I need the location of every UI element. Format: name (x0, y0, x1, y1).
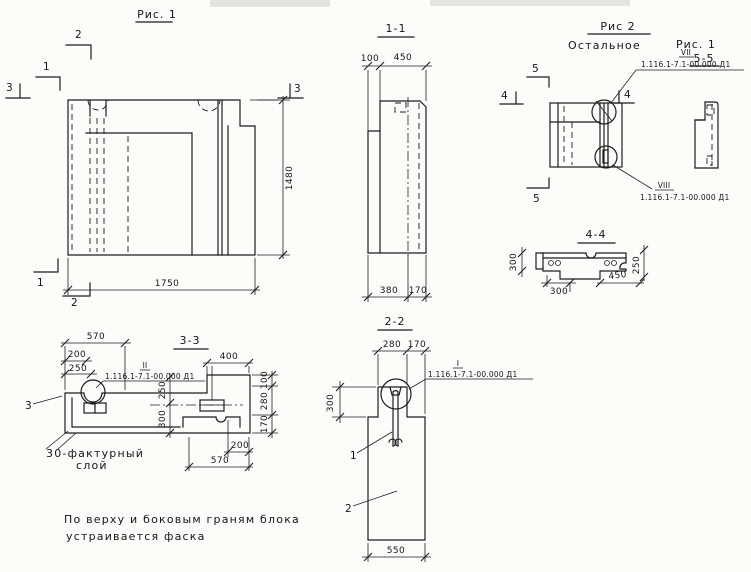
detail-viii-callout: VIII 1.116.1-7.1-00.000 Д1 (613, 165, 729, 202)
section-1-1: 1-1 100 450 380 170 (361, 22, 432, 302)
section-5-5-title: 5-5 (694, 52, 715, 65)
detail-circle-bottom (595, 146, 617, 168)
section-1-1-top-dims: 100 450 (361, 53, 432, 131)
dim-100: 100 (361, 54, 379, 64)
dim-33-right-170: 170 (260, 415, 270, 433)
dim-height-1480: 1480 (285, 166, 295, 191)
fig1-title-text: Рис. 1 (137, 8, 177, 21)
dim-170: 170 (409, 286, 427, 296)
dim-33-570-top: 570 (87, 332, 105, 342)
section-2-2-dims: 280 170 300 550 (326, 340, 431, 562)
fig2-block-view (550, 100, 622, 168)
dim-33-bottom-570: 570 (211, 456, 229, 466)
dim-length-1750: 1750 (155, 279, 180, 289)
detail-i-callout: I 1.116.1-7.1-00.000 Д1 (409, 359, 533, 389)
detail-ii-callout: II 1.116.1-7.1-00.000 Д1 (96, 361, 205, 388)
facing-layer-line (86, 133, 192, 255)
dim-380: 380 (380, 286, 398, 296)
dim-44-bottom-300: 300 (550, 287, 568, 297)
marker-2-bottom: 2 (71, 297, 78, 309)
dim-22-300: 300 (326, 394, 336, 412)
fig2-subtitle: Остальное (568, 39, 641, 52)
section-3-3-title: 3-3 (180, 334, 201, 347)
technical-drawing: Рис. 1 2 1 3 3 1 2 (0, 0, 751, 572)
dim-33-inner-250: 250 (158, 381, 168, 399)
dim-33-inner-300: 300 (158, 410, 168, 428)
block-outline (68, 100, 255, 255)
section-2-2-outline (368, 387, 425, 540)
section-5-5-outline (695, 102, 718, 168)
fig2-title: Рис 2 (600, 20, 635, 33)
part-2-label: 2 (345, 503, 352, 515)
loop-pocket (395, 103, 406, 112)
note-line2: устраивается фаска (66, 530, 206, 543)
dim-450: 450 (394, 53, 412, 63)
detail-vii-doc: 1.116.1-7.1-00.000 Д1 (641, 60, 730, 69)
marker-5-top: 5 (532, 63, 539, 75)
marker-3-right: 3 (294, 83, 301, 95)
dim-22-280: 280 (383, 340, 401, 350)
detail-i-label: I (457, 359, 459, 368)
scan-artifacts (210, 0, 630, 7)
lifting-loop (389, 387, 402, 446)
dim-33-250-top: 250 (69, 364, 87, 374)
detail-vii-callout: VII 1.116.1-7.1-00.000 Д1 (611, 48, 744, 103)
section-2-2: 2-2 280 170 300 550 I 1.116.1- (326, 315, 533, 562)
joint-lines (218, 100, 228, 255)
detail-ii-doc: 1.116.1-7.1-00.000 Д1 (105, 372, 194, 381)
loop-recess-left (88, 100, 108, 110)
marker-3-left: 3 (6, 82, 13, 94)
section-1-1-bottom-dims: 380 170 (362, 255, 432, 302)
dim-44-right-250: 250 (632, 256, 642, 274)
part-labels: 1 2 (345, 432, 397, 515)
detail-viii-doc: 1.116.1-7.1-00.000 Д1 (640, 193, 729, 202)
detail-ii-label: II (143, 361, 148, 370)
marker-4-left: 4 (501, 90, 508, 102)
dim-44-left-300: 300 (509, 253, 519, 271)
detail-viii-label: VIII (658, 181, 671, 190)
detail-i-doc: 1.116.1-7.1-00.000 Д1 (428, 370, 517, 379)
section-3-3: 3-3 II 1.116.1-7.1-00.000 Д1 570 200 250… (25, 332, 278, 472)
marker-4-right: 4 (624, 89, 631, 101)
dim-33-right-100: 100 (260, 371, 270, 389)
marker-2-top: 2 (75, 29, 82, 41)
main-elevation-view: 2 1 3 3 1 2 1480 (6, 29, 303, 309)
section-markers-fig2: 5 4 4 5 (500, 63, 634, 205)
dim-33-400: 400 (220, 352, 238, 362)
section-1-1-facing (368, 131, 380, 253)
embedded-plate-right (200, 400, 224, 411)
marker-1-bottom: 1 (37, 277, 44, 289)
loop-recess-right (198, 100, 220, 111)
drawing-sheet: Рис. 1 2 1 3 3 1 2 (0, 0, 751, 572)
section-1-1-title: 1-1 (386, 22, 407, 35)
detail-vii-label: VII (681, 48, 691, 57)
section-4-4: 4-4 300 300 450 250 (509, 228, 648, 297)
section-2-2-title: 2-2 (385, 315, 406, 328)
leader-3-label: 3 (25, 400, 32, 412)
section-5-5: 5-5 (690, 52, 719, 168)
dim-33-right-280: 280 (260, 392, 270, 410)
dim-33-200-top: 200 (68, 350, 86, 360)
dim-44-bottom-450: 450 (608, 270, 628, 282)
fig2: Рис 2 Остальное Рис. 1 VII 1.116.1-7.1-0… (500, 20, 744, 297)
main-view-dimensions: 1480 1750 (63, 96, 295, 295)
dim-22-170: 170 (408, 340, 426, 350)
section-markers-fig1: 2 1 3 3 1 2 (6, 29, 303, 309)
general-note: По верху и боковым граням блока устраива… (64, 513, 300, 543)
detail-circle-ii (81, 380, 105, 404)
section-4-4-title: 4-4 (586, 228, 607, 241)
fig1-title: Рис. 1 (136, 8, 177, 22)
marker-1-top: 1 (43, 61, 50, 73)
facing-note-line2: слой (76, 459, 108, 472)
dim-22-550: 550 (387, 546, 405, 556)
marker-5-bottom: 5 (533, 193, 540, 205)
dim-33-bottom-200: 200 (231, 441, 249, 451)
hidden-lines (72, 104, 128, 252)
part-1-label: 1 (350, 450, 357, 462)
fig2-block-outline (550, 103, 622, 167)
note-line1: По верху и боковым граням блока (64, 513, 300, 526)
